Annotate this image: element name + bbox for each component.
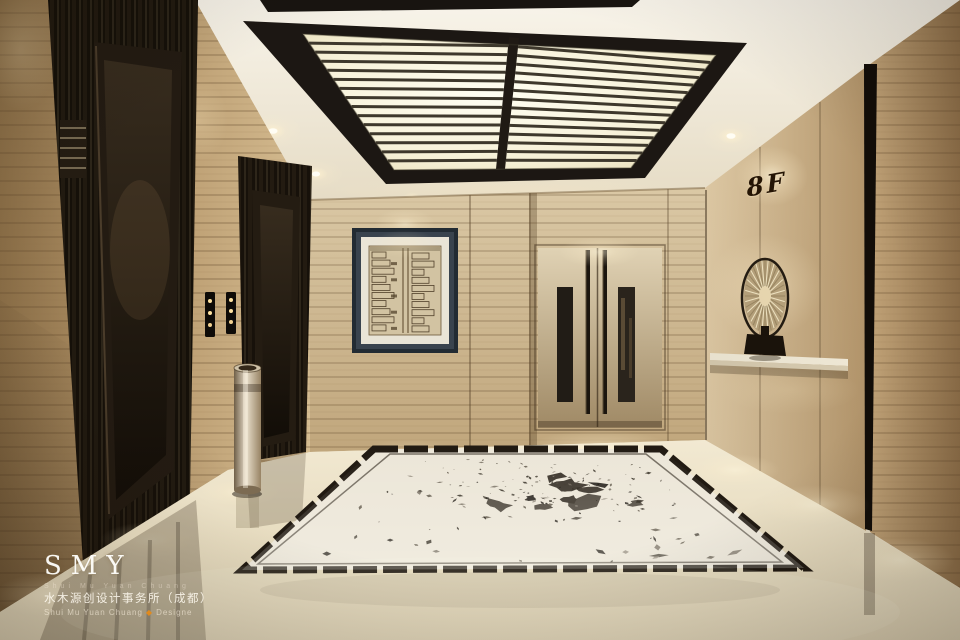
watermark-studio-name: 水木源创设计事务所（成都） (44, 593, 213, 606)
vignette (0, 0, 960, 640)
credit-name: Shui Mu Yuan Chuang (44, 608, 143, 617)
watermark-subtitle: Shui Mu Yuan Chuang (44, 583, 213, 591)
diamond-icon: ◆ (146, 608, 153, 617)
watermark-logo: SMY (44, 552, 213, 581)
watermark-credit: Shui Mu Yuan Chuang◆Designe (44, 609, 213, 618)
elevator-lobby-photo: 8F SMY Shui Mu Yuan Chuang 水木源创设计事务所（成都）… (0, 0, 960, 640)
credit-role: Designe (156, 608, 192, 617)
studio-watermark: SMY Shui Mu Yuan Chuang 水木源创设计事务所（成都） Sh… (44, 552, 213, 618)
lobby-render (0, 0, 960, 640)
